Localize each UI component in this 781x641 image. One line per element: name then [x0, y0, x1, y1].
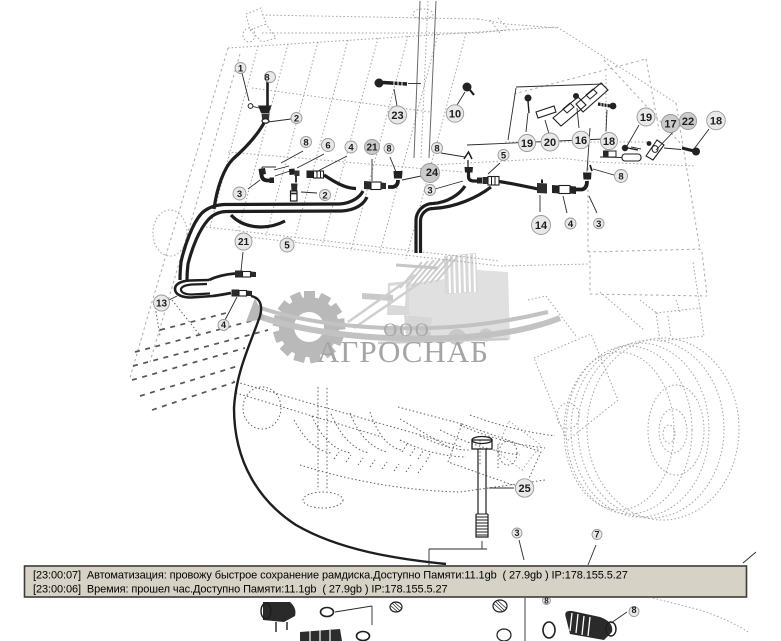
svg-text:2: 2	[322, 190, 327, 201]
svg-text:[23:00:07] Автоматизация: про: [23:00:07] Автоматизация: провожу быстро…	[33, 570, 628, 582]
svg-text:24: 24	[426, 167, 439, 179]
svg-text:8: 8	[303, 137, 308, 148]
svg-text:10: 10	[449, 109, 461, 121]
svg-text:3: 3	[427, 185, 432, 196]
svg-text:[23:00:06] Времия: прошел час: [23:00:06] Времия: прошел час.Доступно П…	[33, 584, 448, 596]
svg-text:17: 17	[664, 119, 676, 131]
svg-text:20: 20	[544, 137, 556, 149]
svg-text:14: 14	[535, 220, 548, 232]
svg-text:23: 23	[391, 110, 403, 122]
svg-text:3: 3	[514, 528, 519, 538]
svg-text:5: 5	[284, 241, 290, 252]
svg-text:13: 13	[156, 299, 168, 310]
svg-text:2: 2	[294, 113, 299, 124]
svg-text:1: 1	[238, 63, 244, 74]
svg-text:4: 4	[221, 320, 226, 330]
svg-text:6: 6	[325, 140, 330, 151]
svg-text:8: 8	[386, 144, 391, 154]
svg-text:4: 4	[348, 142, 354, 153]
svg-text:7: 7	[594, 530, 599, 540]
svg-text:22: 22	[682, 116, 694, 128]
svg-text:19: 19	[640, 112, 652, 124]
svg-text:16: 16	[575, 135, 587, 147]
svg-text:8: 8	[264, 72, 269, 83]
svg-text:8: 8	[631, 605, 636, 615]
svg-text:4: 4	[568, 219, 574, 230]
svg-text:21: 21	[238, 237, 250, 248]
svg-text:21: 21	[366, 143, 378, 154]
svg-text:19: 19	[521, 138, 533, 150]
svg-text:3: 3	[596, 219, 601, 230]
svg-text:3: 3	[237, 189, 242, 200]
svg-text:18: 18	[710, 116, 722, 128]
svg-text:25: 25	[518, 483, 530, 495]
svg-text:АГРОСНАБ: АГРОСНАБ	[317, 334, 489, 369]
svg-text:8: 8	[434, 143, 439, 154]
svg-text:5: 5	[501, 150, 507, 161]
svg-text:8: 8	[618, 171, 623, 182]
svg-text:18: 18	[603, 136, 615, 148]
